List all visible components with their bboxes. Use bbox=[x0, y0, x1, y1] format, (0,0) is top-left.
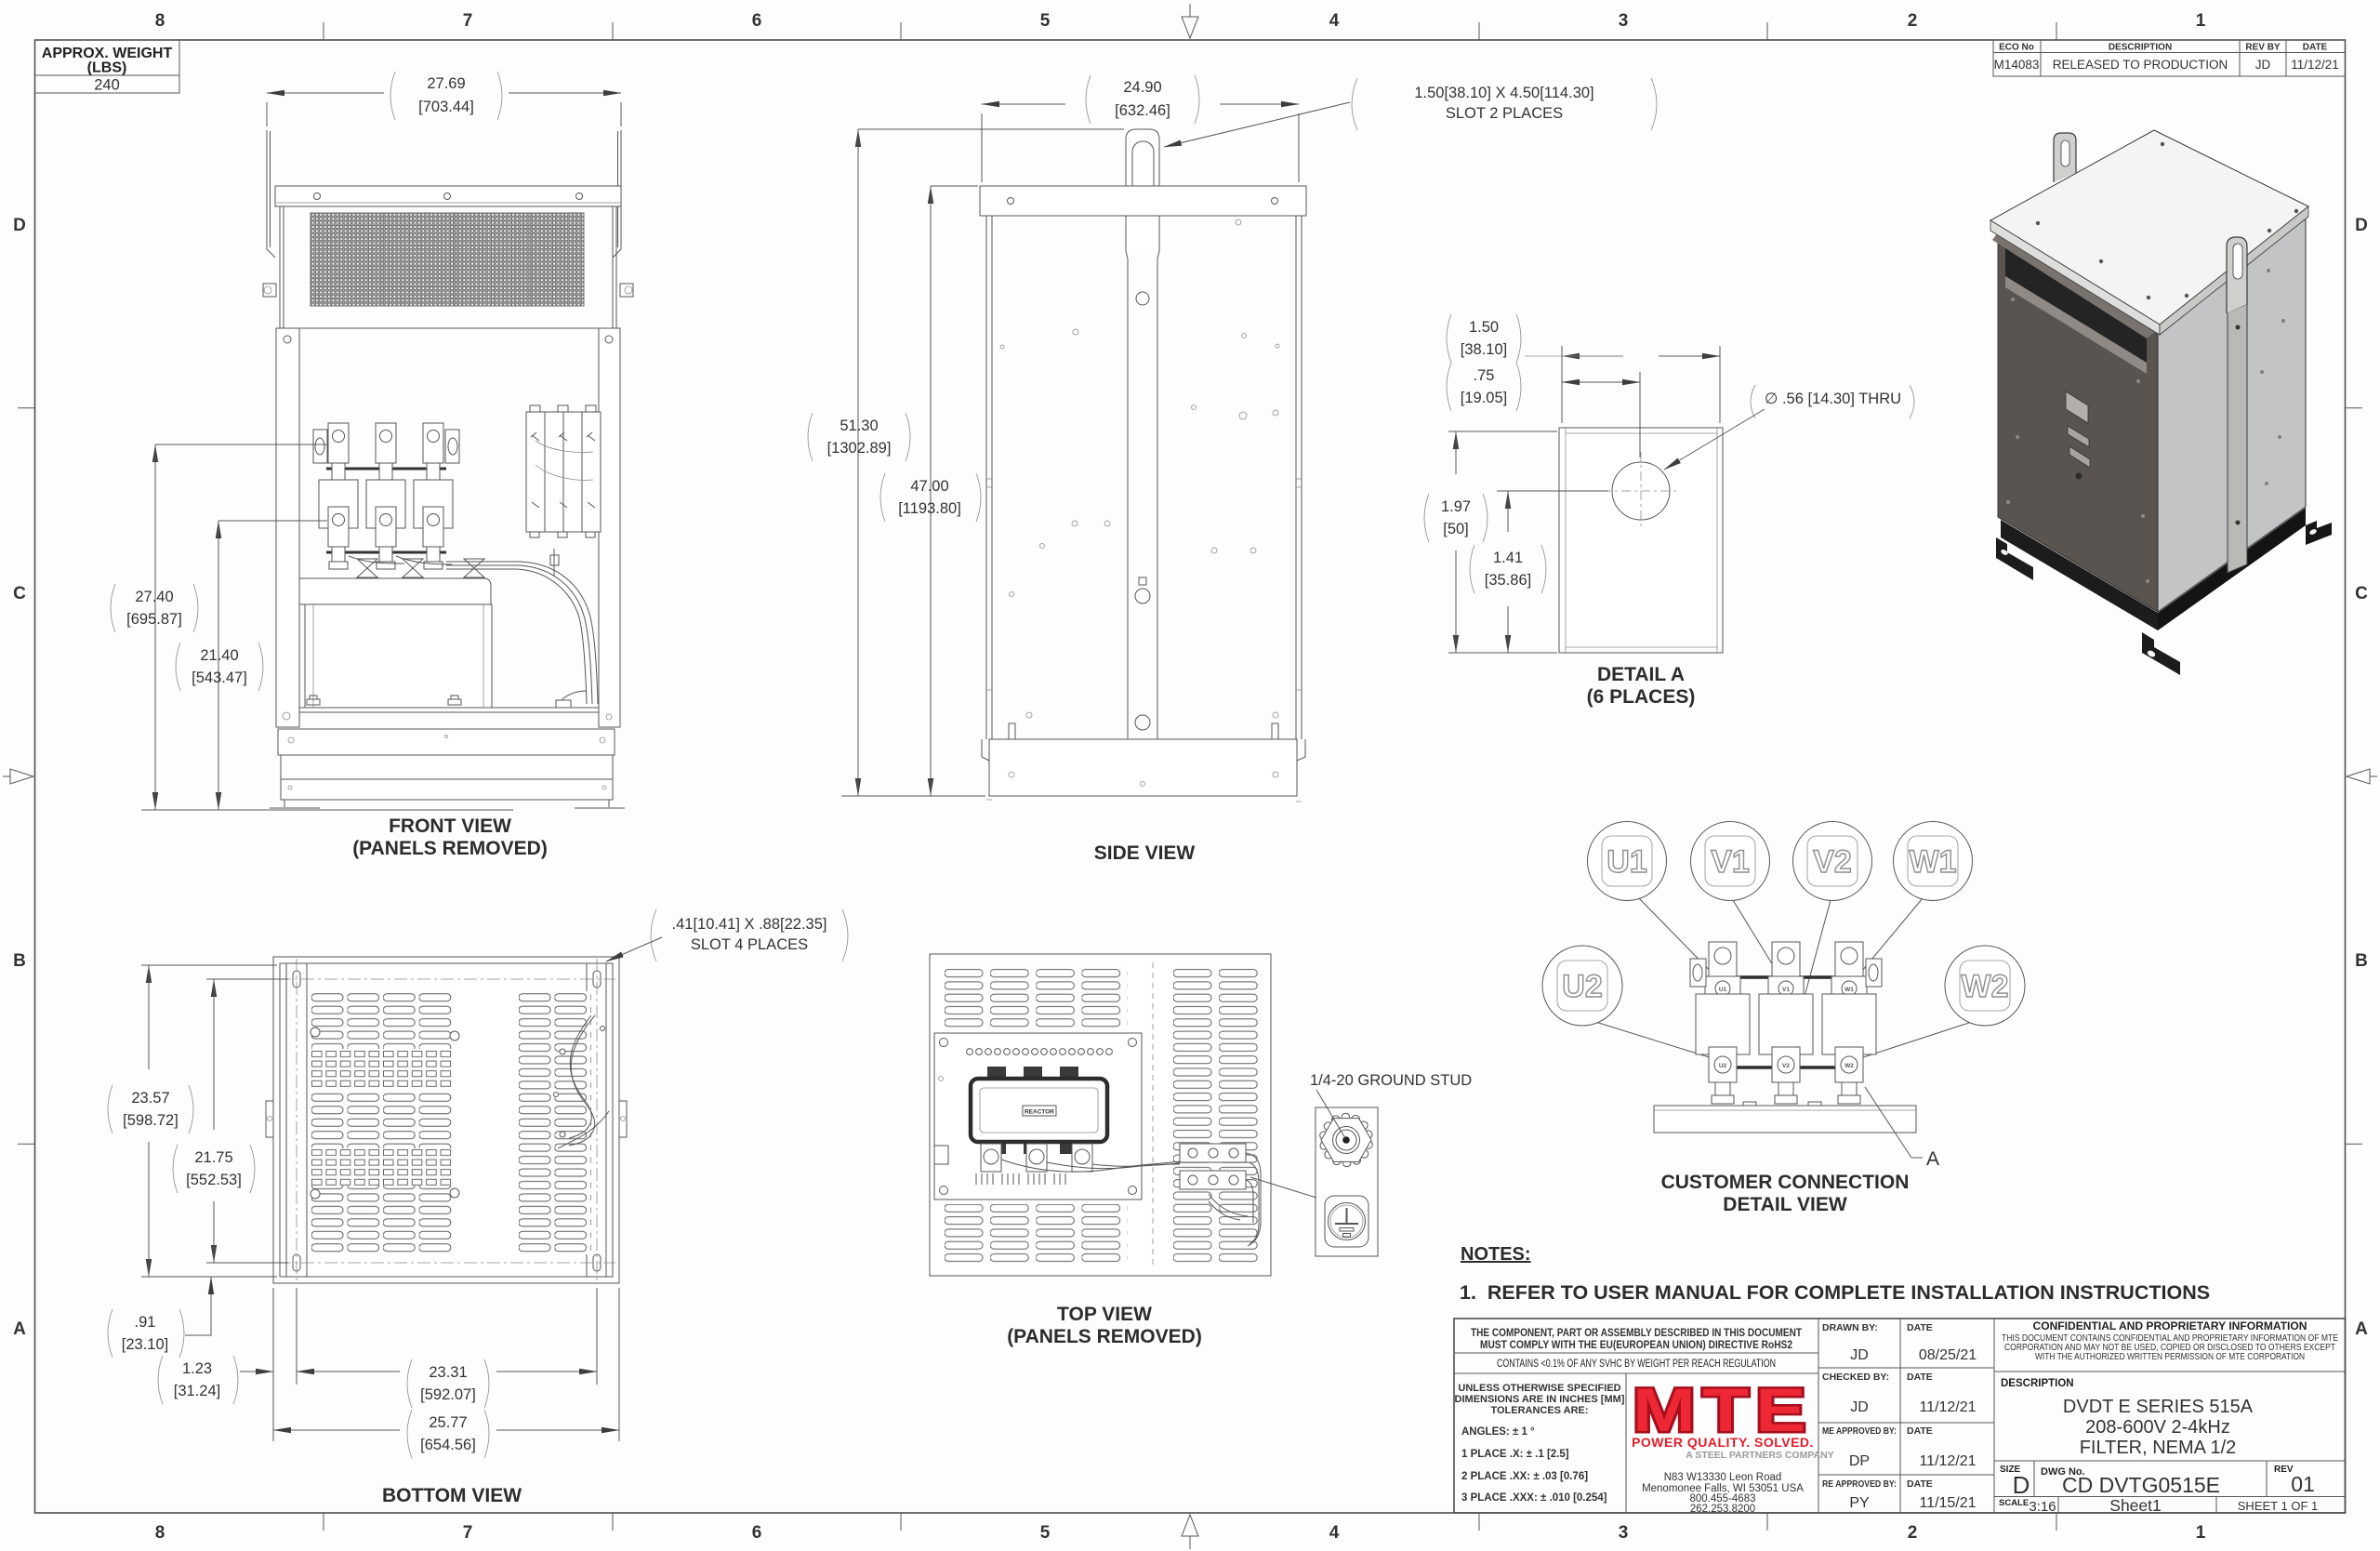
svg-text:V2: V2 bbox=[1782, 1063, 1790, 1069]
svg-text:51.30: 51.30 bbox=[840, 418, 878, 434]
svg-text:2 PLACE .XX: ± .03 [0.76]: 2 PLACE .XX: ± .03 [0.76] bbox=[1461, 1471, 1588, 1482]
svg-text:U2: U2 bbox=[1562, 969, 1602, 1004]
svg-text:11/15/21: 11/15/21 bbox=[1919, 1495, 1976, 1511]
svg-text:ANGLES: ± 1 °: ANGLES: ± 1 ° bbox=[1461, 1426, 1535, 1438]
svg-text:11/12/21: 11/12/21 bbox=[2291, 58, 2339, 72]
svg-text:.91: .91 bbox=[135, 1314, 156, 1331]
svg-text:JD: JD bbox=[1850, 1347, 1869, 1363]
svg-text:[50]: [50] bbox=[1443, 521, 1469, 537]
svg-text:SHEET 1 OF 1: SHEET 1 OF 1 bbox=[2238, 1499, 2318, 1513]
svg-text:[598.72]: [598.72] bbox=[123, 1112, 178, 1129]
svg-text:MUST COMPLY WITH THE EU(EUROPE: MUST COMPLY WITH THE EU(EUROPEAN UNION) … bbox=[1480, 1340, 1792, 1351]
svg-text:N83 W13330 Leon Road: N83 W13330 Leon Road bbox=[1664, 1472, 1782, 1483]
svg-text:3:16: 3:16 bbox=[2029, 1499, 2056, 1515]
svg-text:JD: JD bbox=[1850, 1399, 1869, 1415]
svg-text:(LBS): (LBS) bbox=[87, 60, 127, 76]
svg-text:RE APPROVED BY:: RE APPROVED BY: bbox=[1822, 1478, 1897, 1490]
svg-text:(6 PLACES): (6 PLACES) bbox=[1587, 686, 1696, 708]
svg-text:01: 01 bbox=[2291, 1472, 2315, 1496]
svg-text:[632.46]: [632.46] bbox=[1115, 102, 1170, 119]
svg-text:DATE: DATE bbox=[2303, 43, 2328, 53]
svg-text:PY: PY bbox=[1849, 1495, 1870, 1511]
svg-text:V2: V2 bbox=[1813, 844, 1852, 880]
svg-text:262.253.8200: 262.253.8200 bbox=[1690, 1504, 1755, 1515]
svg-text:A: A bbox=[2355, 1319, 2368, 1339]
svg-text:W1: W1 bbox=[1910, 844, 1957, 880]
svg-text:(PANELS REMOVED): (PANELS REMOVED) bbox=[1007, 1326, 1202, 1347]
svg-text:CHECKED BY:: CHECKED BY: bbox=[1822, 1372, 1889, 1383]
svg-text:5: 5 bbox=[1040, 11, 1051, 31]
svg-text:CONTAINS <0.1% OF ANY SVHC BY: CONTAINS <0.1% OF ANY SVHC BY WEIGHT PER… bbox=[1497, 1359, 1776, 1370]
svg-text:U1: U1 bbox=[1719, 987, 1727, 993]
svg-text:REV BY: REV BY bbox=[2245, 43, 2281, 53]
svg-text:DATE: DATE bbox=[1907, 1478, 1933, 1490]
svg-text:3: 3 bbox=[1619, 11, 1629, 31]
svg-text:B: B bbox=[13, 951, 26, 971]
svg-text:27.69: 27.69 bbox=[427, 75, 465, 92]
svg-text:.75: .75 bbox=[1474, 367, 1495, 384]
svg-text:7: 7 bbox=[463, 1523, 473, 1543]
svg-text:1: 1 bbox=[2196, 1523, 2206, 1543]
svg-text:47.00: 47.00 bbox=[910, 478, 948, 495]
svg-text:TOLERANCES ARE:: TOLERANCES ARE: bbox=[1490, 1405, 1588, 1416]
svg-text:FILTER, NEMA 1/2: FILTER, NEMA 1/2 bbox=[2080, 1438, 2237, 1458]
svg-text:7: 7 bbox=[463, 11, 473, 31]
svg-text:D: D bbox=[2355, 216, 2368, 235]
svg-text:FRONT VIEW: FRONT VIEW bbox=[389, 815, 511, 837]
svg-text:4: 4 bbox=[1329, 1523, 1340, 1543]
svg-text:[1302.89]: [1302.89] bbox=[827, 440, 892, 457]
svg-text:23.57: 23.57 bbox=[131, 1090, 169, 1107]
svg-text:[38.10]: [38.10] bbox=[1461, 341, 1507, 358]
svg-text:A: A bbox=[13, 1319, 26, 1339]
svg-text:[31.24]: [31.24] bbox=[174, 1383, 220, 1399]
svg-text:1.50[38.10] X 4.50[114.30]: 1.50[38.10] X 4.50[114.30] bbox=[1414, 85, 1593, 101]
svg-text:21.40: 21.40 bbox=[200, 647, 238, 664]
svg-text:UNLESS OTHERWISE SPECIFIED: UNLESS OTHERWISE SPECIFIED bbox=[1458, 1383, 1620, 1394]
svg-text:POWER QUALITY. SOLVED.: POWER QUALITY. SOLVED. bbox=[1632, 1435, 1814, 1450]
svg-text:SIDE VIEW: SIDE VIEW bbox=[1094, 842, 1196, 864]
svg-text:WITH THE AUTHORIZED WRITTEN PE: WITH THE AUTHORIZED WRITTEN PERMISSION O… bbox=[2035, 1352, 2305, 1362]
svg-text:ECO No: ECO No bbox=[1999, 43, 2034, 53]
svg-text:1.97: 1.97 bbox=[1441, 498, 1471, 515]
svg-text:W2: W2 bbox=[1962, 969, 2009, 1004]
svg-text:NOTES:: NOTES: bbox=[1461, 1244, 1531, 1265]
svg-text:27.40: 27.40 bbox=[135, 589, 173, 605]
svg-text:A: A bbox=[1926, 1148, 1939, 1170]
svg-text:ME APPROVED BY:: ME APPROVED BY: bbox=[1822, 1425, 1897, 1437]
svg-text:1. REFER TO USER MANUAL FOR C: 1. REFER TO USER MANUAL FOR COMPLETE INS… bbox=[1460, 1281, 2210, 1304]
svg-text:B: B bbox=[2355, 951, 2368, 971]
svg-text:3 PLACE .XXX: ± .010 [0.254]: 3 PLACE .XXX: ± .010 [0.254] bbox=[1461, 1492, 1607, 1504]
svg-text:[695.87]: [695.87] bbox=[126, 611, 182, 628]
svg-text:DETAIL VIEW: DETAIL VIEW bbox=[1723, 1194, 1847, 1215]
svg-text:BOTTOM VIEW: BOTTOM VIEW bbox=[382, 1485, 522, 1506]
svg-text:23.31: 23.31 bbox=[429, 1364, 467, 1381]
svg-text:V1: V1 bbox=[1782, 987, 1790, 993]
svg-text:1.50: 1.50 bbox=[1469, 319, 1499, 336]
svg-text:25.77: 25.77 bbox=[429, 1414, 467, 1431]
svg-text:THE COMPONENT, PART OR ASSEMBL: THE COMPONENT, PART OR ASSEMBLY DESCRIBE… bbox=[1471, 1328, 1802, 1339]
svg-text:5: 5 bbox=[1040, 1523, 1051, 1543]
svg-text:[35.86]: [35.86] bbox=[1485, 572, 1531, 589]
svg-text:U1: U1 bbox=[1606, 844, 1646, 880]
svg-text:2: 2 bbox=[1908, 1523, 1918, 1543]
svg-text:[19.05]: [19.05] bbox=[1461, 390, 1507, 406]
svg-text:24.90: 24.90 bbox=[1123, 79, 1161, 96]
svg-text:08/25/21: 08/25/21 bbox=[1919, 1347, 1977, 1363]
svg-text:(PANELS REMOVED): (PANELS REMOVED) bbox=[352, 838, 548, 859]
svg-text:TOP VIEW: TOP VIEW bbox=[1057, 1304, 1152, 1325]
svg-text:[654.56]: [654.56] bbox=[420, 1437, 476, 1453]
svg-text:21.75: 21.75 bbox=[194, 1149, 232, 1166]
svg-text:SLOT 2 PLACES: SLOT 2 PLACES bbox=[1446, 105, 1563, 122]
svg-text:DESCRIPTION: DESCRIPTION bbox=[2109, 43, 2172, 53]
svg-text:11/12/21: 11/12/21 bbox=[1919, 1399, 1976, 1415]
svg-text:C: C bbox=[13, 584, 26, 603]
svg-text:D: D bbox=[13, 216, 26, 235]
svg-text:6: 6 bbox=[752, 1523, 762, 1543]
svg-text:CONFIDENTIAL AND PROPRIETARY I: CONFIDENTIAL AND PROPRIETARY INFORMATION bbox=[2033, 1319, 2307, 1332]
svg-text:1: 1 bbox=[2196, 11, 2206, 31]
svg-text:U2: U2 bbox=[1719, 1063, 1727, 1069]
svg-text:SLOT 4 PLACES: SLOT 4 PLACES bbox=[691, 936, 808, 953]
svg-text:[543.47]: [543.47] bbox=[192, 669, 247, 686]
svg-text:A STEEL PARTNERS COMPANY: A STEEL PARTNERS COMPANY bbox=[1686, 1450, 1833, 1461]
svg-text:SCALE: SCALE bbox=[1999, 1498, 2029, 1508]
svg-text:3: 3 bbox=[1619, 1523, 1629, 1543]
svg-text:DATE: DATE bbox=[1907, 1322, 1933, 1333]
svg-text:4: 4 bbox=[1329, 11, 1340, 31]
svg-text:6: 6 bbox=[752, 11, 762, 31]
svg-text:W1: W1 bbox=[1844, 987, 1854, 993]
svg-text:DP: DP bbox=[1849, 1453, 1870, 1469]
svg-text:1.23: 1.23 bbox=[182, 1360, 212, 1377]
svg-text:D: D bbox=[2013, 1471, 2030, 1499]
svg-text:8: 8 bbox=[155, 1523, 165, 1543]
svg-text:M14083: M14083 bbox=[1994, 58, 2040, 72]
svg-text:208-600V 2-4kHz: 208-600V 2-4kHz bbox=[2085, 1417, 2230, 1438]
svg-text:[703.44]: [703.44] bbox=[418, 99, 474, 115]
svg-text:W2: W2 bbox=[1844, 1063, 1854, 1069]
svg-text:240: 240 bbox=[94, 77, 120, 94]
svg-text:1/4-20 GROUND STUD: 1/4-20 GROUND STUD bbox=[1310, 1072, 1472, 1089]
svg-text:RELEASED TO PRODUCTION: RELEASED TO PRODUCTION bbox=[2053, 58, 2228, 72]
svg-text:2: 2 bbox=[1908, 11, 1918, 31]
svg-text:DRAWN BY:: DRAWN BY: bbox=[1822, 1322, 1878, 1333]
svg-text:1 PLACE .X: ± .1 [2.5]: 1 PLACE .X: ± .1 [2.5] bbox=[1461, 1449, 1569, 1460]
svg-text:CUSTOMER CONNECTION: CUSTOMER CONNECTION bbox=[1661, 1172, 1910, 1193]
svg-text:11/12/21: 11/12/21 bbox=[1919, 1453, 1976, 1469]
svg-text:[1193.80]: [1193.80] bbox=[898, 500, 961, 517]
svg-text:CD DVTG0515E: CD DVTG0515E bbox=[2062, 1473, 2220, 1497]
svg-text:DETAIL A: DETAIL A bbox=[1597, 664, 1685, 685]
svg-text:DATE: DATE bbox=[1907, 1425, 1933, 1437]
svg-text:DIMENSIONS ARE IN INCHES [MM]: DIMENSIONS ARE IN INCHES [MM] bbox=[1455, 1394, 1625, 1405]
svg-text:JD: JD bbox=[2255, 58, 2271, 72]
svg-text:8: 8 bbox=[155, 11, 165, 31]
svg-text:.41[10.41] X .88[22.35]: .41[10.41] X .88[22.35] bbox=[672, 916, 827, 933]
svg-text:[23.10]: [23.10] bbox=[122, 1336, 168, 1353]
svg-text:[552.53]: [552.53] bbox=[186, 1172, 242, 1188]
svg-text:V1: V1 bbox=[1711, 844, 1750, 880]
svg-text:1.41: 1.41 bbox=[1493, 550, 1523, 566]
svg-text:REACTOR: REACTOR bbox=[1025, 1109, 1054, 1116]
svg-text:Sheet1: Sheet1 bbox=[2109, 1496, 2161, 1515]
svg-text:DATE: DATE bbox=[1907, 1372, 1933, 1383]
svg-text:C: C bbox=[2355, 584, 2368, 603]
svg-text:[592.07]: [592.07] bbox=[420, 1386, 476, 1403]
svg-text:∅ .56 [14.30] THRU: ∅ .56 [14.30] THRU bbox=[1765, 391, 1901, 407]
svg-text:APPROX. WEIGHT: APPROX. WEIGHT bbox=[42, 46, 173, 61]
svg-text:DESCRIPTION: DESCRIPTION bbox=[2001, 1378, 2074, 1389]
svg-text:DVDT E SERIES 515A: DVDT E SERIES 515A bbox=[2063, 1397, 2254, 1417]
svg-text:MTE: MTE bbox=[1633, 1375, 1813, 1444]
